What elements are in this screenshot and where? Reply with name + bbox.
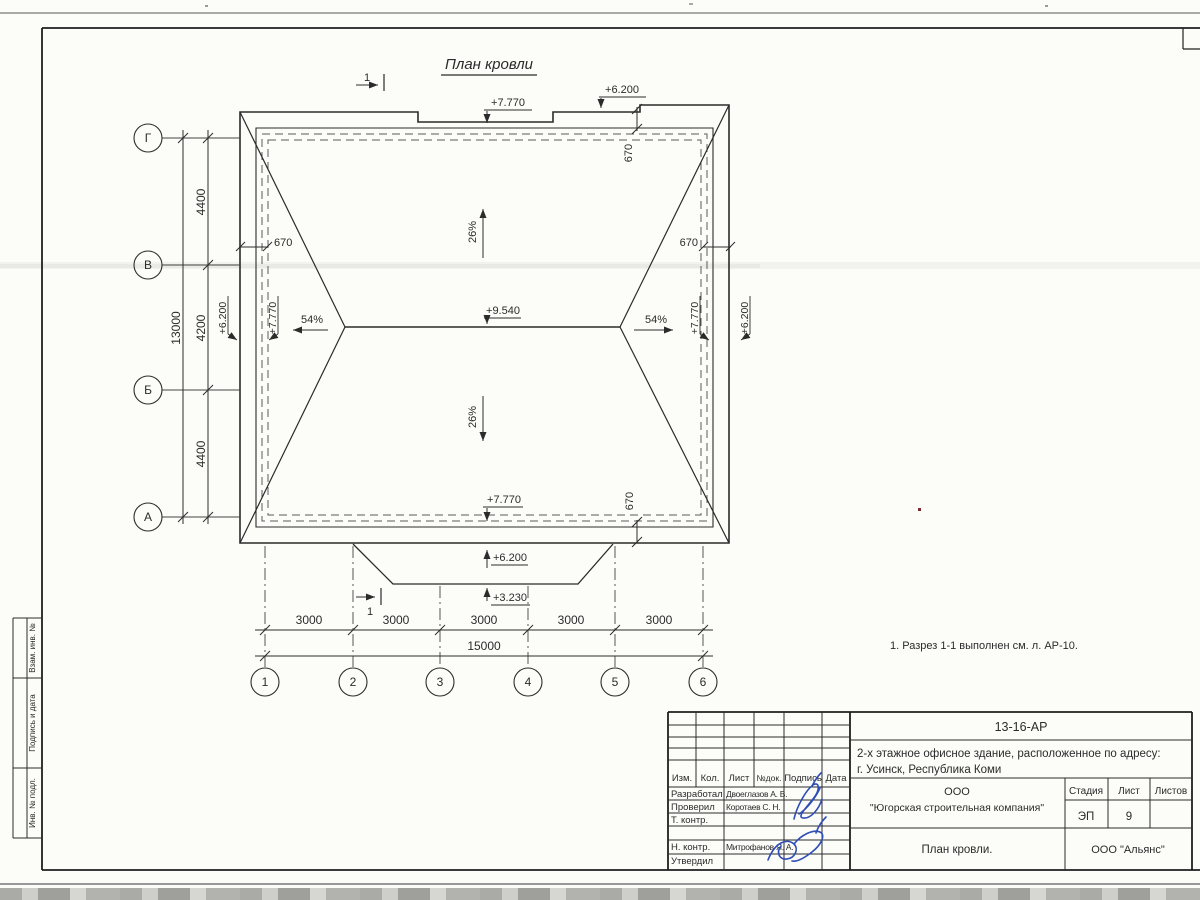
elev-porch-3230: +3.230 [493, 592, 527, 604]
elev-ridge-9540: +9.540 [486, 305, 520, 317]
role-t-kontr: Т. контр. [671, 815, 708, 826]
dim-left-seg-3: 4400 [194, 440, 208, 467]
address-line-1: 2-х этажное офисное здание, расположенно… [857, 748, 1161, 760]
axis-number-2: 2 [350, 675, 357, 689]
elev-top-6200: +6.200 [605, 84, 639, 96]
sheet-label: Лист [1118, 786, 1140, 797]
role-razrabotal: Разработал [671, 789, 723, 800]
dim-bottom-total: 15000 [467, 639, 501, 653]
elev-right-7770: +7.770 [689, 302, 701, 335]
offset-670-bottom-right: 670 [624, 492, 636, 510]
margin-stamp-boxes: Взам. инв. № Подпись и дата Инв. № подл. [13, 618, 42, 838]
offset-670-left: 670 [274, 237, 292, 249]
dim-bottom-seg-3: 3000 [471, 613, 498, 627]
axis-letter-g: Г [145, 131, 152, 145]
elev-porch-6200: +6.200 [493, 552, 527, 564]
elev-left-7770: +7.770 [267, 302, 279, 335]
slope-26-bottom: 26% [467, 406, 479, 428]
dimensions: 13000 4400 4200 4400 3000 3000 3000 3000… [169, 104, 735, 661]
firm-name: ООО "Альянс" [1091, 844, 1165, 856]
axis-number-3: 3 [437, 675, 444, 689]
axis-letter-b: Б [144, 383, 152, 397]
drawing-title-group: План кровли [441, 56, 537, 75]
margin-label-inv: Инв. № подл. [28, 778, 37, 828]
axis-number-6: 6 [700, 675, 707, 689]
slope-marks: 26% 26% 54% 54% [293, 209, 673, 441]
axis-grid: Г В Б А 1 2 3 4 5 6 [134, 124, 717, 696]
drawing-sheet: Взам. инв. № Подпись и дата Инв. № подл.… [0, 0, 1200, 900]
revision-header-row: Изм. Кол. Лист №док. Подпись Дата [672, 773, 847, 784]
section-mark-bottom-label: 1 [367, 606, 373, 618]
scan-bottom-band [0, 888, 1200, 900]
name-korotaev: Коротаев С. Н. [726, 802, 780, 812]
axis-bubbles-bottom: 1 2 3 4 5 6 [251, 668, 717, 696]
roof-plan [240, 105, 729, 584]
slope-54-left: 54% [301, 314, 323, 326]
col-list: Лист [729, 773, 750, 784]
drawing-canvas: Взам. инв. № Подпись и дата Инв. № подл.… [0, 0, 1200, 900]
margin-label-podpis: Подпись и дата [28, 694, 37, 752]
doc-code: 13-16-АР [995, 720, 1048, 734]
address-line-2: г. Усинск, Республика Коми [857, 764, 1001, 776]
frame-corner-box [1183, 28, 1200, 49]
dim-bottom-seg-4: 3000 [558, 613, 585, 627]
section-marks: 1 1 [356, 72, 384, 618]
sheets-label: Листов [1155, 786, 1188, 797]
axis-letter-a: А [144, 510, 152, 524]
slope-54-right: 54% [645, 314, 667, 326]
role-proveril: Проверил [671, 802, 715, 813]
stage-value: ЭП [1078, 811, 1095, 823]
porch-roof-outline [353, 544, 613, 584]
title-block: 13-16-АР 2-х этажное офисное здание, рас… [668, 712, 1192, 870]
slope-26-top: 26% [467, 221, 479, 243]
elev-top-7770: +7.770 [491, 97, 525, 109]
axis-letter-v: В [144, 258, 152, 272]
stage-label: Стадия [1069, 786, 1103, 797]
sheet-note: 1. Разрез 1-1 выполнен см. л. АР-10. [890, 640, 1078, 652]
dim-bottom-seg-2: 3000 [383, 613, 410, 627]
role-n-kontr: Н. контр. [671, 842, 710, 853]
dim-left-total: 13000 [169, 311, 183, 345]
dim-bottom-seg-1: 3000 [296, 613, 323, 627]
dim-left-seg-2: 4200 [194, 314, 208, 341]
sheet-frame [42, 28, 1200, 870]
plan-title: План кровли [445, 56, 534, 73]
dim-left-seg-1: 4400 [194, 188, 208, 215]
col-izm: Изм. [672, 773, 692, 784]
col-data: Дата [825, 773, 847, 784]
elev-bottom-7770: +7.770 [487, 494, 521, 506]
offset-670-top-right: 670 [623, 144, 635, 162]
sheet-value: 9 [1126, 811, 1132, 823]
signature-rows: Разработал Проверил Т. контр. Н. контр. … [671, 789, 793, 867]
margin-label-vzam: Взам. инв. № [28, 623, 37, 673]
col-ndok: №док. [757, 773, 782, 783]
drawing-title-cell: План кровли. [922, 844, 993, 856]
offset-670-right: 670 [680, 237, 698, 249]
name-dvoeglazov: Двоеглазов А. В. [726, 789, 787, 799]
red-speck [918, 508, 921, 511]
elev-left-6200: +6.200 [217, 302, 229, 335]
name-mitrofanov: Митрофанов Я. А. [726, 842, 793, 852]
axis-number-5: 5 [612, 675, 619, 689]
dim-bottom-seg-5: 3000 [646, 613, 673, 627]
axis-bubbles-left: Г В Б А [134, 124, 162, 531]
role-utverdil: Утвердил [671, 856, 713, 867]
company-line-1: ООО [944, 786, 970, 798]
elev-right-6200: +6.200 [739, 302, 751, 335]
section-mark-top-label: 1 [364, 72, 370, 84]
axis-number-4: 4 [525, 675, 532, 689]
col-kol: Кол. [701, 773, 720, 784]
company-line-2: "Югорская строительная компания" [870, 802, 1044, 814]
axis-number-1: 1 [262, 675, 269, 689]
signature-2 [768, 817, 826, 861]
